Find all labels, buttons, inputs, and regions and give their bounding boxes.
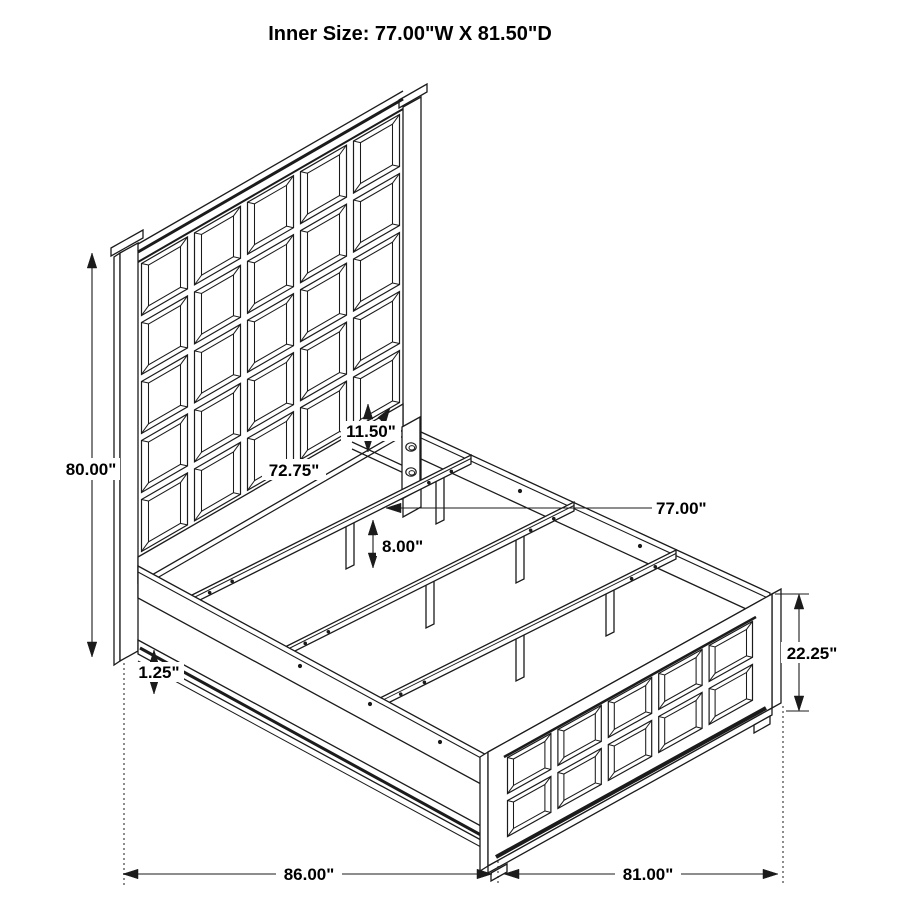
footboard-right-cap	[772, 589, 781, 708]
dimension-arrowhead	[87, 642, 97, 657]
screw-dot	[653, 565, 657, 569]
screw-dot	[630, 577, 634, 581]
dimension-arrowhead	[794, 594, 804, 609]
headboard-left-post	[120, 243, 138, 661]
dimension-arrowhead	[794, 696, 804, 711]
screw-dot	[230, 580, 234, 584]
footboard-left-side	[480, 752, 488, 871]
dim-label-base-trim: 1.25"	[138, 663, 179, 682]
screw-dot	[552, 517, 556, 521]
diagram-canvas: Inner Size: 77.00"W X 81.50"D 80.00" 72.…	[0, 0, 900, 900]
screw-dot	[450, 470, 454, 474]
dim-label-overall-width: 81.00"	[623, 865, 674, 884]
screw-dot	[427, 481, 431, 485]
dim-label-inner-width: 77.00"	[656, 499, 707, 518]
side-rail-right-edge	[421, 438, 770, 599]
slat-leg	[346, 521, 354, 569]
screw-dot	[327, 630, 331, 634]
dim-label-headboard-width: 72.75"	[269, 461, 320, 480]
screw-dot	[438, 740, 442, 744]
inner-size-title: Inner Size: 77.00"W X 81.50"D	[268, 23, 552, 45]
dimension-arrowhead	[87, 253, 97, 268]
screw-dot	[208, 591, 212, 595]
dim-label-panel-to-rail-gap: 11.50"	[346, 422, 396, 441]
slat-leg	[606, 588, 614, 636]
dimension-arrowhead	[368, 520, 378, 535]
dim-label-overall-length: 86.00"	[284, 865, 335, 884]
slat-leg	[516, 535, 524, 583]
dimension-arrowhead	[123, 869, 138, 879]
dim-label-footboard-height: 22.25"	[787, 644, 838, 663]
headboard-right-post	[403, 97, 421, 462]
screw-dot	[423, 681, 427, 685]
bed-dimension-diagram: Inner Size: 77.00"W X 81.50"D 80.00" 72.…	[0, 0, 900, 900]
dim-label-headboard-height: 80.00"	[66, 460, 117, 479]
slat-leg	[436, 476, 444, 524]
screw-dot	[298, 664, 302, 668]
screw-dot	[518, 489, 522, 493]
bed-line-art	[111, 84, 781, 881]
screw-dot	[399, 692, 403, 696]
slat-leg	[516, 633, 524, 681]
screw-dot	[368, 702, 372, 706]
screw-dot	[303, 642, 307, 646]
dimension-arrowhead	[763, 869, 778, 879]
slat-leg	[426, 580, 434, 628]
screw-dot	[529, 528, 533, 532]
screw-dot	[638, 544, 642, 548]
dim-label-slat-leg-height: 8.00"	[382, 537, 423, 556]
